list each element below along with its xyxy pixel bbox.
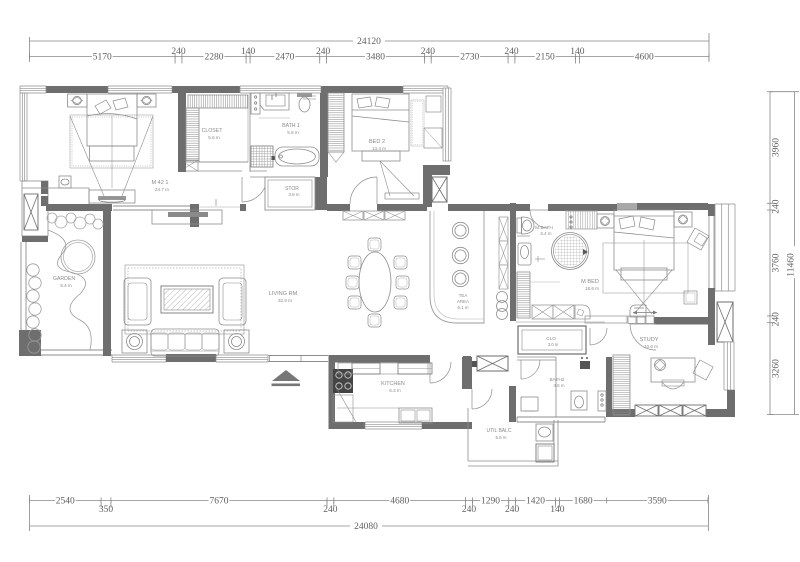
svg-text:3960: 3960 — [772, 138, 782, 157]
svg-text:M 42 1: M 42 1 — [151, 180, 168, 186]
svg-text:5170: 5170 — [93, 53, 112, 63]
svg-text:24.7 m: 24.7 m — [155, 187, 169, 192]
svg-text:LIVING RM: LIVING RM — [269, 291, 298, 297]
svg-text:2150: 2150 — [536, 53, 555, 63]
svg-text:3260: 3260 — [772, 359, 782, 378]
svg-text:4680: 4680 — [390, 497, 409, 507]
svg-text:KITCHEN: KITCHEN — [381, 381, 405, 387]
svg-text:6.1 m: 6.1 m — [458, 305, 469, 310]
svg-text:1290: 1290 — [481, 497, 500, 507]
svg-text:CLOSET: CLOSET — [202, 128, 224, 134]
svg-text:240: 240 — [421, 47, 436, 57]
svg-text:10.6 m: 10.6 m — [644, 344, 658, 349]
svg-text:3.6 m: 3.6 m — [554, 383, 565, 388]
svg-text:2540: 2540 — [56, 497, 75, 507]
svg-text:3760: 3760 — [772, 253, 782, 272]
svg-text:3480: 3480 — [366, 53, 385, 63]
svg-text:2470: 2470 — [275, 53, 294, 63]
svg-text:24080: 24080 — [354, 522, 378, 532]
svg-text:GARDEN: GARDEN — [53, 276, 75, 282]
svg-text:32.6 m: 32.6 m — [278, 298, 292, 303]
svg-text:240: 240 — [462, 505, 477, 515]
svg-text:UTIL BALC: UTIL BALC — [486, 428, 511, 434]
svg-text:AREA: AREA — [457, 299, 469, 304]
svg-text:M BED: M BED — [581, 279, 599, 285]
svg-text:3.0 m: 3.0 m — [548, 342, 559, 347]
svg-text:BATH 1: BATH 1 — [282, 123, 300, 129]
svg-text:5.8 m: 5.8 m — [287, 130, 299, 135]
svg-text:6.3 m: 6.3 m — [389, 388, 401, 393]
svg-text:4600: 4600 — [635, 53, 654, 63]
svg-text:2730: 2730 — [460, 53, 479, 63]
svg-text:240: 240 — [772, 312, 782, 327]
svg-text:1420: 1420 — [526, 497, 545, 507]
svg-text:11460: 11460 — [787, 253, 797, 277]
svg-text:3.8 m: 3.8 m — [289, 192, 300, 197]
svg-text:CLO: CLO — [546, 336, 556, 341]
svg-text:5.6 m: 5.6 m — [208, 135, 220, 140]
svg-text:1680: 1680 — [574, 497, 593, 507]
svg-text:240: 240 — [772, 199, 782, 214]
svg-text:18.6 m: 18.6 m — [585, 286, 599, 291]
svg-text:13.4 m: 13.4 m — [372, 146, 386, 151]
svg-text:STUDY: STUDY — [640, 337, 659, 343]
svg-text:6.4 m: 6.4 m — [541, 231, 552, 236]
svg-text:7670: 7670 — [210, 497, 229, 507]
svg-text:3590: 3590 — [648, 497, 667, 507]
svg-text:TEA: TEA — [459, 293, 468, 298]
svg-text:5.6 m: 5.6 m — [496, 435, 507, 440]
svg-text:240: 240 — [323, 505, 338, 515]
svg-text:140: 140 — [241, 47, 256, 57]
svg-text:2280: 2280 — [205, 53, 224, 63]
svg-text:240: 240 — [171, 47, 186, 57]
svg-text:BED 2: BED 2 — [369, 139, 385, 145]
svg-text:140: 140 — [550, 505, 565, 515]
svg-text:24120: 24120 — [357, 37, 381, 47]
svg-text:140: 140 — [570, 47, 585, 57]
svg-text:240: 240 — [505, 505, 520, 515]
svg-text:240: 240 — [504, 47, 519, 57]
svg-text:9.4 m: 9.4 m — [60, 283, 72, 288]
svg-text:240: 240 — [316, 47, 331, 57]
